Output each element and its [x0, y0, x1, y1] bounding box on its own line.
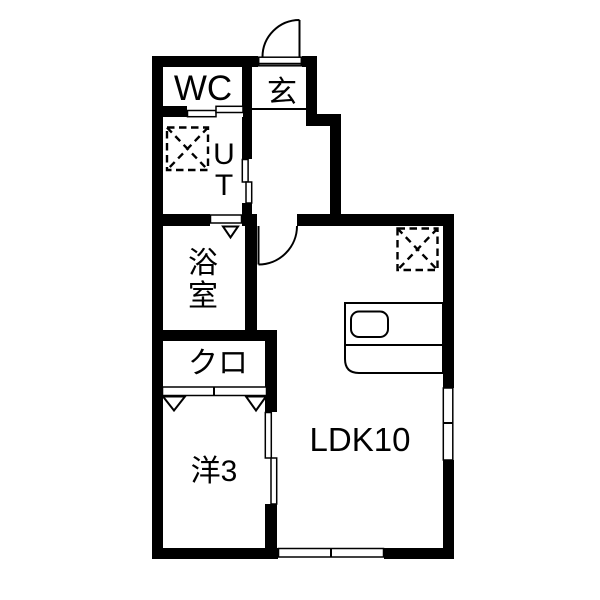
- ldk-door-gap: [257, 214, 297, 226]
- floor-plan-svg: WC 玄 U T 浴 室 クロ 洋3 LDK10: [0, 0, 600, 600]
- wc-sliding-door-panel-1: [188, 111, 217, 117]
- wall-bathroom-east: [245, 226, 257, 330]
- room-label-wc: WC: [174, 69, 232, 108]
- room-label-bathroom-char2: 室: [188, 280, 218, 313]
- utility-sliding-door-panel-2: [246, 182, 252, 203]
- bedroom-sliding-door-panel-1: [265, 413, 271, 459]
- room-label-closet: クロ: [188, 347, 248, 380]
- refrigerator-icon: [398, 229, 438, 271]
- bedroom-sliding-door-panel-2: [271, 458, 277, 504]
- room-label-entrance: 玄: [267, 76, 297, 109]
- wall-hall-east: [330, 114, 341, 226]
- wall-left: [152, 56, 163, 559]
- wall-bathroom-south: [152, 330, 277, 341]
- room-label-utility-line1: U: [213, 138, 235, 171]
- room-label-ldk: LDK10: [310, 421, 411, 458]
- background: [0, 0, 600, 600]
- utility-sliding-door-panel-1: [242, 160, 248, 183]
- bathroom-door-track: [211, 215, 242, 223]
- wall-right: [443, 214, 454, 559]
- washing-machine-icon: [167, 128, 208, 171]
- kitchen-counter: [345, 303, 443, 373]
- room-label-bathroom-char1: 浴: [188, 247, 218, 280]
- wall-middle-band: [152, 214, 454, 226]
- room-label-utility-line2: T: [215, 169, 233, 202]
- floor-plan: WC 玄 U T 浴 室 クロ 洋3 LDK10: [0, 0, 600, 600]
- room-label-western-room: 洋3: [191, 455, 238, 488]
- kitchen-sink-icon: [351, 312, 388, 338]
